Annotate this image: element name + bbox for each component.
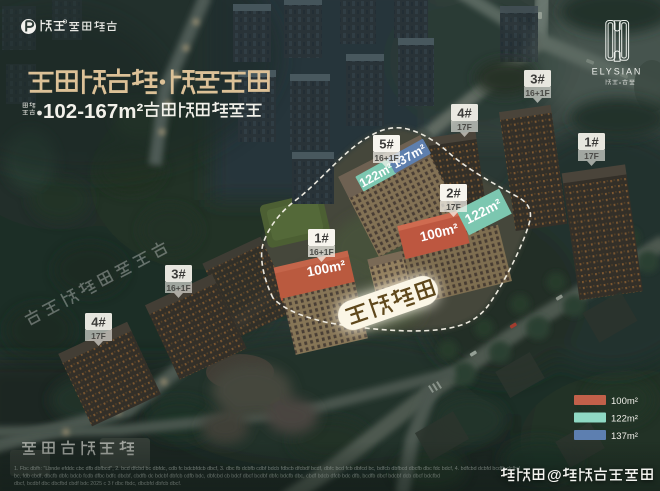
- svg-text:17F: 17F: [457, 122, 472, 132]
- svg-text:100m²: 100m²: [611, 396, 638, 407]
- svg-text:1#: 1#: [314, 231, 329, 246]
- svg-text:17F: 17F: [446, 202, 461, 212]
- svg-text:17F: 17F: [584, 151, 599, 161]
- svg-text:17F: 17F: [91, 331, 106, 341]
- svg-text:5#: 5#: [379, 137, 394, 152]
- svg-text:16+1F: 16+1F: [374, 153, 398, 163]
- svg-text:3#: 3#: [530, 72, 545, 87]
- svg-text:3#: 3#: [171, 267, 186, 282]
- svg-text:ELYSIAN: ELYSIAN: [592, 67, 643, 77]
- svg-text:16+1F: 16+1F: [525, 88, 549, 98]
- svg-text:1#: 1#: [584, 135, 599, 150]
- svg-text:102-167m²: 102-167m²: [43, 100, 143, 123]
- svg-text:4#: 4#: [457, 106, 472, 121]
- svg-text:16+1F: 16+1F: [309, 247, 333, 257]
- svg-text:16+1F: 16+1F: [166, 283, 190, 293]
- svg-text:137m²: 137m²: [611, 431, 638, 442]
- svg-text:@: @: [547, 467, 562, 484]
- svg-text:2#: 2#: [446, 186, 461, 201]
- svg-text:4#: 4#: [91, 315, 106, 330]
- svg-text:122m²: 122m²: [611, 414, 638, 425]
